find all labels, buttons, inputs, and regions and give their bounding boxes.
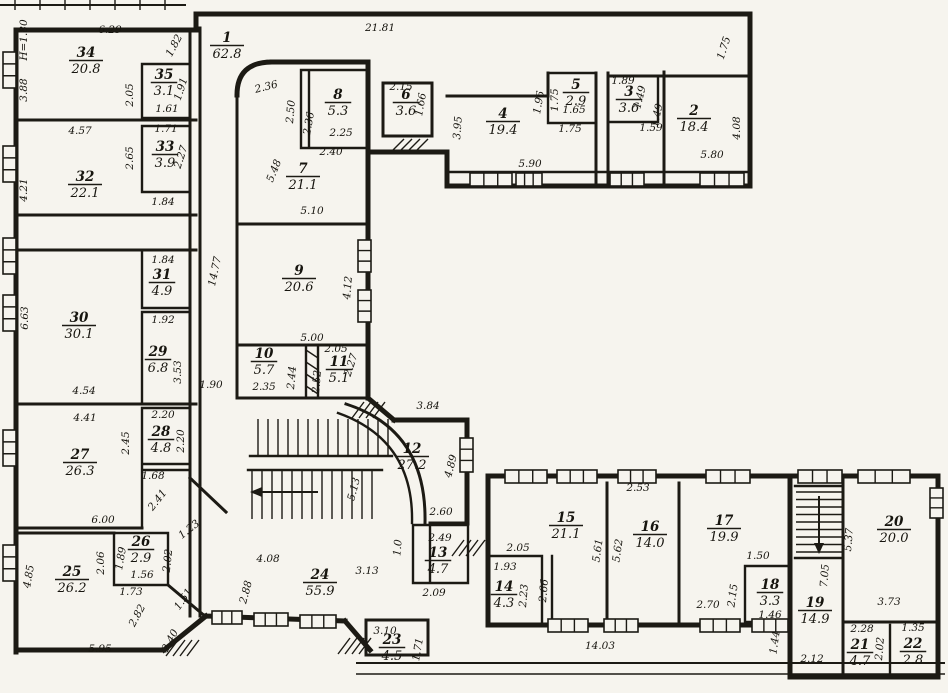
dim-label: 1.96: [531, 90, 547, 115]
room-label-14: 144.3: [491, 579, 518, 611]
room-area: 3.3: [760, 594, 781, 609]
floor-plan-drawing: 6.291.82H=1.803.882.051.911.614.571.712.…: [0, 0, 948, 693]
room-label-8: 85.3: [325, 87, 352, 119]
room-area: 26.2: [57, 581, 87, 596]
room-label-16: 1614.0: [633, 519, 667, 551]
dim-label: 14.03: [585, 640, 615, 652]
dim-label: 3.13: [355, 565, 379, 577]
room-label-26: 262.9: [128, 534, 155, 566]
room-area: 62.8: [213, 47, 242, 62]
room-number: 2: [688, 103, 698, 119]
room-area: 26.3: [65, 464, 95, 479]
room-label-30: 3030.1: [62, 310, 96, 342]
dim-label: 5.48: [264, 157, 284, 183]
dim-label: 1.84: [151, 196, 174, 208]
dim-label: 1.93: [493, 561, 517, 573]
dim-label: 1.46: [758, 609, 782, 621]
room-area: 30.1: [65, 327, 94, 342]
room-number: 16: [641, 519, 660, 535]
dim-label: 1.44: [767, 630, 782, 655]
dim-label: 2.41: [145, 487, 169, 514]
room-label-20: 2020.0: [877, 514, 911, 546]
room-number: 14: [495, 579, 514, 595]
dim-label: 2.70: [695, 599, 720, 611]
window-icon: [460, 438, 473, 472]
dim-label: 2.02: [161, 548, 176, 574]
window-icon: [700, 173, 744, 186]
room-number: 24: [310, 567, 330, 583]
room-number: 21: [850, 637, 870, 653]
dim-label: 1.71: [410, 637, 426, 662]
dim-label: 2.02: [873, 636, 887, 662]
room-number: 11: [330, 354, 349, 370]
room-area: 27.2: [397, 458, 427, 473]
dim-label: 5.61: [590, 538, 605, 563]
room-number: 33: [156, 139, 175, 155]
dim-label: 2.36: [301, 111, 317, 137]
room-area: 4.5: [381, 649, 403, 664]
room-number: 18: [761, 577, 780, 593]
room-area: 4.7: [427, 562, 449, 577]
room-area: 4.9: [151, 284, 173, 299]
window-icon: [3, 238, 16, 274]
room-area: 55.9: [306, 584, 335, 599]
dim-label: 2.88: [237, 579, 255, 606]
window-icon: [505, 470, 547, 483]
room-number: 25: [62, 564, 82, 580]
dim-label: 2.50: [284, 99, 298, 125]
room-area: 2.9: [130, 551, 152, 566]
window-icon: [3, 146, 16, 182]
room-area: 14.9: [801, 612, 830, 627]
window-icon: [700, 619, 740, 632]
room-number: 13: [429, 545, 448, 561]
dim-label: 4.57: [67, 125, 92, 137]
room-label-2: 218.4: [677, 103, 711, 135]
room-number: 15: [557, 510, 576, 526]
dim-label: 5.10: [300, 205, 324, 217]
room-area: 4.3: [493, 596, 515, 611]
dim-label: 2.25: [328, 127, 353, 139]
dim-label: 4.08: [255, 553, 280, 565]
room-label-24: 2455.9: [303, 567, 337, 599]
room-area: 5.1: [329, 371, 350, 386]
room-number: 5: [571, 77, 580, 93]
window-icon: [358, 290, 371, 322]
room-label-34: 3420.8: [69, 45, 103, 77]
room-area: 21.1: [551, 527, 581, 542]
room-number: 17: [715, 513, 734, 529]
room-number: 12: [403, 441, 422, 457]
room-area: 21.1: [288, 178, 318, 193]
dim-label: 2.23: [517, 583, 531, 609]
room-label-17: 1719.9: [707, 513, 741, 545]
dim-label: 5.00: [300, 332, 324, 344]
room-number: 6: [401, 87, 411, 103]
dim-label: 1.35: [901, 622, 925, 634]
dim-label: 14.77: [206, 255, 224, 287]
room-area: 19.9: [710, 530, 739, 545]
dim-label: 3.95: [451, 115, 465, 139]
dim-label: 1.75: [549, 88, 561, 112]
room-area: 20.8: [71, 62, 101, 77]
dim-label: 6.29: [98, 24, 122, 36]
room-label-35: 353.1: [151, 67, 178, 99]
room-label-10: 105.7: [251, 346, 278, 378]
dim-label: 3.84: [416, 400, 439, 412]
dim-label: 1.75: [558, 123, 582, 135]
dim-label: 2.82: [126, 602, 148, 629]
room-area: 4.7: [849, 654, 871, 669]
room-label-11: 115.1: [326, 354, 353, 386]
room-area: 18.4: [680, 120, 709, 135]
room-area: 20.6: [284, 280, 314, 295]
dim-label: 5.90: [518, 158, 542, 170]
window-icon: [3, 52, 16, 88]
dim-label: 2.45: [120, 431, 132, 456]
room-label-19: 1914.9: [798, 595, 832, 627]
room-area: 5.3: [328, 104, 349, 119]
room-number: 28: [151, 424, 171, 440]
window-icon: [358, 240, 371, 272]
room-area: 3.6: [619, 101, 640, 116]
dim-label: 1.89: [113, 546, 129, 571]
dim-label: 2.44: [285, 366, 299, 391]
window-icon: [300, 615, 336, 628]
dim-label: 2.06: [95, 551, 107, 576]
dim-label: 2.35: [251, 381, 276, 393]
dim-label: H=1.80: [18, 19, 30, 62]
room-number: 4: [498, 106, 507, 122]
room-number: 23: [382, 632, 402, 648]
room-area: 3.1: [154, 84, 175, 99]
dim-label: 1.92: [151, 314, 175, 326]
window-icon: [3, 295, 16, 331]
room-area: 6.8: [148, 361, 169, 376]
dim-label: 4.41: [72, 412, 96, 424]
room-number: 20: [884, 514, 904, 530]
room-number: 9: [294, 263, 304, 279]
dim-label: 4.85: [21, 564, 37, 590]
room-label-22: 222.8: [900, 636, 927, 668]
dim-label: 1.75: [715, 35, 734, 61]
window-icon: [604, 619, 638, 632]
stair-secondary: [796, 492, 842, 554]
dim-label: 1.0: [391, 539, 404, 557]
dim-label: 2.05: [505, 542, 530, 554]
room-label-1: 162.8: [210, 30, 244, 62]
room-number: 34: [77, 45, 96, 61]
window-icon: [516, 173, 542, 186]
dim-label: 2.05: [124, 83, 136, 108]
room-area: 3.9: [155, 156, 176, 171]
dim-label: 1.71: [154, 123, 177, 135]
room-label-31: 314.9: [149, 267, 176, 299]
window-icon: [557, 470, 597, 483]
dim-label: 1.73: [119, 586, 143, 598]
room-label-7: 721.1: [286, 161, 320, 193]
room-number: 32: [76, 169, 95, 185]
dim-label: 1.90: [199, 379, 223, 391]
dim-label: 2.66: [537, 578, 551, 604]
dim-label: 3.73: [877, 596, 901, 608]
room-number: 1: [222, 30, 231, 46]
dim-label: 4.54: [71, 385, 95, 397]
room-area: 5.7: [254, 363, 275, 378]
room-area: 20.0: [879, 531, 909, 546]
dim-label: 1.56: [130, 569, 154, 581]
dim-label: 2.60: [428, 506, 453, 518]
room-number: 35: [155, 67, 174, 83]
room-label-12: 1227.2: [395, 441, 429, 473]
dim-label: 2.65: [124, 146, 136, 171]
room-label-28: 284.8: [148, 424, 175, 456]
dim-label: 2.28: [849, 623, 874, 635]
dim-label: 2.20: [150, 409, 175, 421]
room-number: 8: [333, 87, 343, 103]
room-label-33: 333.9: [152, 139, 179, 171]
room-area: 4.8: [150, 441, 172, 456]
window-icon: [930, 488, 943, 518]
room-number: 10: [255, 346, 274, 362]
dim-label: 21.81: [364, 22, 395, 34]
room-label-4: 419.4: [486, 106, 520, 138]
floor-plan-page: 6.291.82H=1.803.882.051.911.614.571.712.…: [0, 0, 948, 693]
dim-label: 5.62: [610, 538, 625, 563]
room-area: 19.4: [489, 123, 518, 138]
dim-label: 2.52: [310, 369, 324, 395]
room-number: 30: [70, 310, 89, 326]
dim-label: 4.21: [18, 178, 30, 202]
dim-label: 2.40: [318, 146, 343, 158]
room-label-15: 1521.1: [549, 510, 583, 542]
dim-label: 1.82: [164, 32, 186, 59]
window-icon: [548, 619, 588, 632]
window-icon: [706, 470, 750, 483]
dim-label: 1.59: [639, 122, 663, 134]
dim-label: 3.88: [18, 78, 30, 102]
room-label-21: 214.7: [847, 637, 874, 669]
room-label-29: 296.8: [145, 344, 172, 376]
room-area: 2.8: [902, 653, 924, 668]
dim-label: 5.13: [345, 476, 363, 502]
dim-label: 1.84: [151, 254, 174, 266]
room-number: 27: [70, 447, 90, 463]
window-icon: [254, 613, 288, 626]
room-number: 3: [624, 84, 633, 100]
dim-label: 5.37: [842, 527, 856, 552]
dim-label: 2.20: [175, 429, 187, 454]
window-icon: [798, 470, 842, 483]
dim-label: 4.12: [341, 275, 355, 301]
room-label-27: 2726.3: [63, 447, 97, 479]
room-label-9: 920.6: [282, 263, 316, 295]
dim-label: 3.53: [172, 360, 184, 384]
room-area: 2.9: [565, 94, 587, 109]
room-label-5: 52.9: [563, 77, 590, 109]
room-area: 3.6: [396, 104, 417, 119]
dim-label: 1.50: [746, 550, 770, 562]
dim-label: 4.89: [442, 453, 460, 480]
dim-label: 4.08: [731, 116, 743, 141]
dim-label: 5.95: [88, 643, 112, 655]
dim-label: 1.68: [141, 470, 165, 482]
window-icon: [3, 545, 16, 581]
dim-label: 2.53: [625, 482, 650, 494]
room-label-13: 134.7: [425, 545, 452, 577]
room-number: 19: [806, 595, 825, 611]
room-label-32: 3222.1: [68, 169, 102, 201]
window-icon: [610, 173, 644, 186]
dim-label: 6.63: [19, 306, 31, 330]
dim-label: 5.80: [700, 149, 724, 161]
dim-label: 2.09: [421, 587, 446, 599]
room-number: 7: [298, 161, 308, 177]
room-area: 14.0: [636, 536, 665, 551]
room-number: 22: [903, 636, 923, 652]
room-label-23: 234.5: [379, 632, 406, 664]
room-number: 31: [153, 267, 172, 283]
dim-label: 2.12: [799, 653, 824, 665]
dim-label: 7.05: [818, 563, 832, 588]
room-area: 22.1: [70, 186, 100, 201]
dim-label: 2.49: [427, 532, 452, 544]
window-icon: [470, 173, 512, 186]
dim-label: 2.36: [253, 78, 280, 96]
window-icon: [3, 430, 16, 466]
window-icon: [858, 470, 910, 483]
dim-label: 1.61: [155, 103, 178, 115]
room-number: 29: [148, 344, 168, 360]
dim-label: 1.91: [172, 76, 191, 102]
dim-label: 6.00: [91, 514, 115, 526]
dim-label: 2.15: [725, 583, 740, 609]
window-icon: [212, 611, 242, 624]
room-number: 26: [131, 534, 151, 550]
room-label-18: 183.3: [757, 577, 784, 609]
room-label-25: 2526.2: [55, 564, 89, 596]
